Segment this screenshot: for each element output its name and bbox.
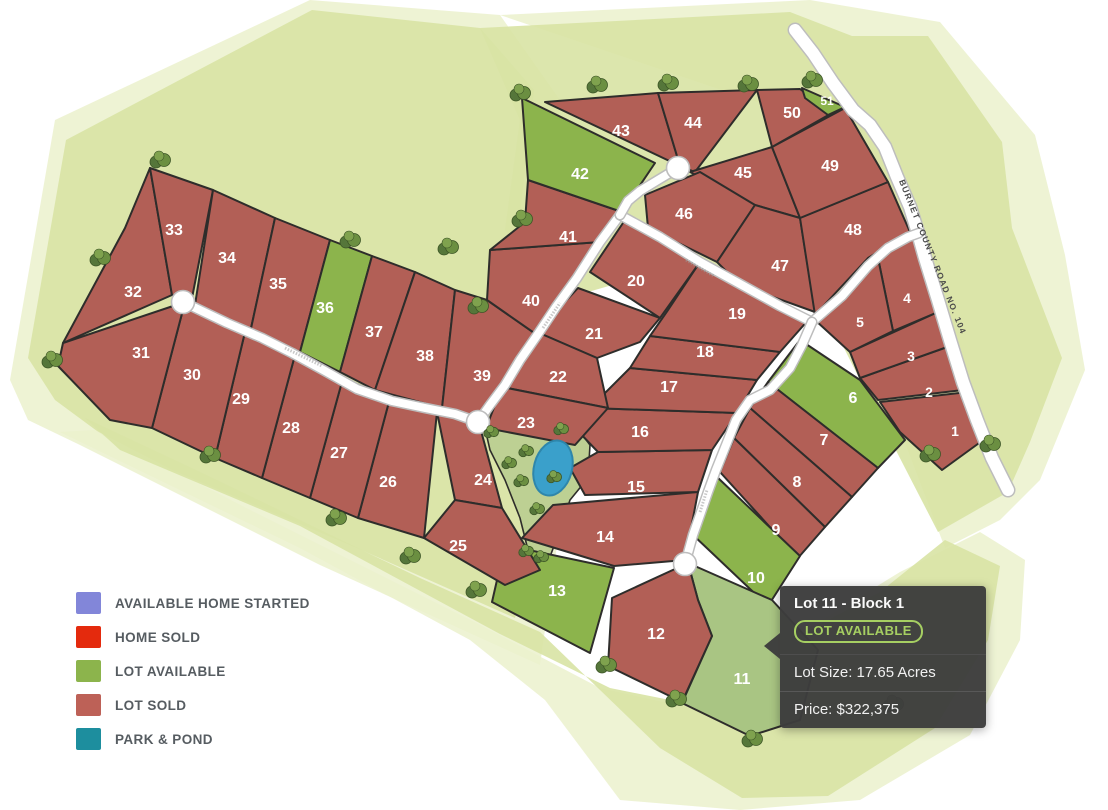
legend-swatch-available-home-started bbox=[76, 592, 101, 614]
legend-label-lot-available: LOT AVAILABLE bbox=[115, 664, 226, 679]
cul-de-sac-1 bbox=[172, 291, 195, 314]
legend-row-park-pond: PARK & POND bbox=[76, 728, 310, 750]
tooltip-header: Lot 11 - Block 1 LOT AVAILABLE bbox=[780, 586, 986, 654]
legend-swatch-home-sold bbox=[76, 626, 101, 648]
legend-swatch-park-pond bbox=[76, 728, 101, 750]
cul-de-sac-4 bbox=[674, 553, 697, 576]
legend-row-available-home-started: AVAILABLE HOME STARTED bbox=[76, 592, 310, 614]
legend-label-available-home-started: AVAILABLE HOME STARTED bbox=[115, 596, 310, 611]
tooltip-lot-size: Lot Size: 17.65 Acres bbox=[780, 655, 986, 691]
lot-available-badge: LOT AVAILABLE bbox=[794, 620, 923, 643]
lot-polygon-15[interactable] bbox=[570, 450, 712, 495]
tooltip-body: Lot Size: 17.65 Acres Price: $322,375 bbox=[780, 654, 986, 728]
cul-de-sac-2 bbox=[667, 157, 690, 180]
legend-label-lot-sold: LOT SOLD bbox=[115, 698, 186, 713]
legend-label-home-sold: HOME SOLD bbox=[115, 630, 200, 645]
tooltip-price: Price: $322,375 bbox=[780, 691, 986, 728]
lot-tooltip: Lot 11 - Block 1 LOT AVAILABLE Lot Size:… bbox=[780, 586, 986, 728]
legend-row-lot-available: LOT AVAILABLE bbox=[76, 660, 310, 682]
legend-row-lot-sold: LOT SOLD bbox=[76, 694, 310, 716]
legend-swatch-lot-available bbox=[76, 660, 101, 682]
legend: AVAILABLE HOME STARTEDHOME SOLDLOT AVAIL… bbox=[76, 592, 310, 750]
legend-label-park-pond: PARK & POND bbox=[115, 732, 213, 747]
lot-map-page: 1234567891011121314151617181920212223242… bbox=[0, 0, 1108, 810]
legend-swatch-lot-sold bbox=[76, 694, 101, 716]
legend-row-home-sold: HOME SOLD bbox=[76, 626, 310, 648]
tooltip-title: Lot 11 - Block 1 bbox=[794, 595, 972, 612]
